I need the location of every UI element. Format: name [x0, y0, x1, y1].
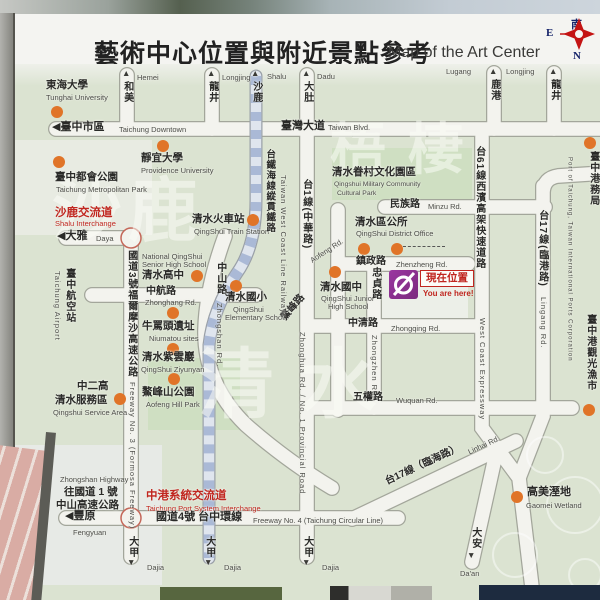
art-center-logo-icon: [389, 270, 418, 299]
header-photo-strip: [0, 0, 600, 14]
compass-rose-icon: [560, 15, 598, 53]
you-are-here-badge: 現在位置: [420, 270, 474, 287]
roads-layer: [0, 64, 600, 600]
photo-thumbnail-3: [479, 585, 600, 600]
photo-thumbnail-2: [330, 586, 432, 600]
map-canvas: 沙鹿梧棲清水 ▲和美Hemei▲龍井Longjing▲沙鹿Shalu▲大肚Dad…: [0, 64, 600, 600]
compass-east-label: E: [546, 27, 553, 39]
photo-thumbnail-1: [160, 587, 282, 600]
art-center-map-sign: 藝術中心位置與附近景點參考 Map of the Art Center 南 E …: [0, 0, 600, 600]
page-title-en: Map of the Art Center: [388, 44, 540, 62]
title-bar: 藝術中心位置與附近景點參考 Map of the Art Center: [0, 14, 600, 64]
district-office-connector: [403, 246, 445, 247]
art-center-logo: [389, 270, 418, 299]
you-are-here-en: You are here!: [423, 289, 474, 298]
railway: [209, 76, 256, 558]
